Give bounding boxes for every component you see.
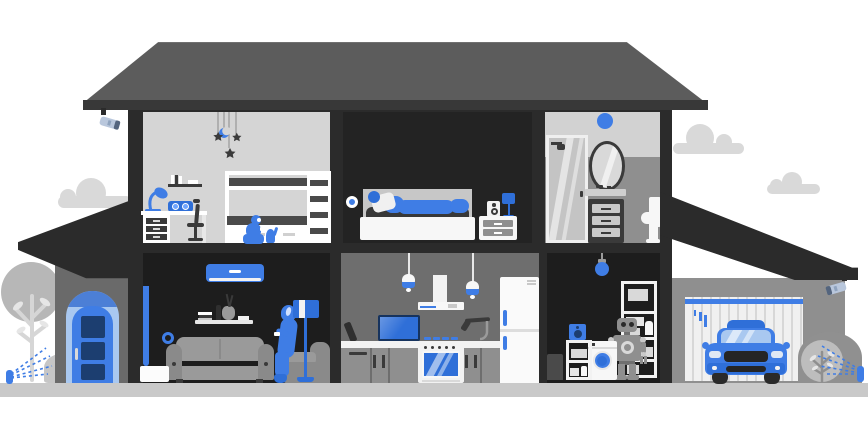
cloud [58, 177, 132, 208]
woman-legs [275, 352, 289, 376]
book-stack [188, 180, 198, 184]
security-camera-left-icon [92, 108, 124, 134]
car-headlight [709, 351, 721, 358]
book-spine [171, 175, 174, 184]
shower [546, 135, 588, 243]
car-windshield [721, 330, 771, 344]
vanity-counter [585, 189, 626, 196]
ground-strip [0, 383, 868, 397]
smart-home-illustration [0, 0, 868, 441]
smart-light [597, 113, 613, 129]
sleeper-feet [450, 199, 469, 213]
bottle [216, 305, 221, 320]
shower-handle [580, 191, 583, 197]
chair-post [194, 227, 197, 238]
car-vent [726, 366, 766, 372]
sofa-foot [256, 379, 263, 383]
drawer-unit [143, 215, 170, 243]
bed-ladder [307, 171, 331, 243]
top-bunk-mattress [229, 178, 307, 186]
mirror [589, 141, 625, 191]
speaker-shelf [566, 324, 592, 380]
car-headlight [771, 351, 783, 358]
phone [274, 332, 280, 336]
cloud-base [767, 184, 820, 194]
robot-head [617, 318, 637, 332]
curtain [143, 286, 149, 366]
floor-lamp-shade [293, 300, 319, 318]
door-panel [81, 364, 105, 380]
cat-tail [273, 227, 278, 236]
drawer [146, 234, 167, 240]
cabinet-handle [474, 355, 477, 368]
drawer [483, 229, 513, 236]
sleeper-body [398, 200, 454, 214]
smart-sensor [346, 196, 358, 208]
toilet-base [646, 239, 660, 243]
shelf-board [195, 320, 253, 324]
towels [571, 349, 587, 358]
cat [266, 227, 278, 243]
cloud-base [673, 143, 744, 154]
sofa-seat [170, 366, 270, 380]
sofa [166, 337, 274, 383]
sofa-foot [176, 379, 183, 383]
fridge [500, 277, 539, 383]
drawer [146, 218, 167, 224]
table-lamp [502, 193, 515, 218]
star-mobile [210, 112, 246, 162]
book-stack [198, 318, 212, 321]
vanity-soap [607, 186, 611, 188]
lamp-shade [502, 193, 515, 204]
speaker [487, 201, 500, 217]
child-legs [243, 234, 264, 244]
car-wheel [712, 373, 728, 384]
burner-knob [424, 337, 431, 340]
pendant-light [401, 253, 416, 293]
woman-boots [274, 374, 287, 383]
cabinet-handle [465, 355, 468, 368]
door-handle [75, 348, 78, 360]
side-table [140, 366, 169, 382]
washing-machine [588, 341, 617, 380]
cloud [767, 172, 820, 194]
cabinet-handle [382, 355, 385, 368]
bottle [581, 366, 587, 376]
drawer [483, 220, 513, 227]
toilet [641, 197, 662, 243]
floor-lamp-pole [304, 318, 307, 377]
cloud [673, 123, 744, 154]
bin [547, 354, 563, 380]
pendant-light [465, 253, 480, 300]
burner-knob [442, 337, 449, 340]
front-door [66, 291, 119, 383]
vanity-drawers [588, 199, 624, 243]
chair-base [188, 238, 203, 241]
cabinet-handle [373, 355, 376, 368]
sprinkler-left [2, 344, 56, 386]
oven [418, 344, 464, 383]
oven-door [422, 351, 460, 378]
burner-knob [433, 337, 440, 340]
vanity-faucet [596, 185, 603, 188]
bed-base [360, 217, 475, 240]
wall-shelf-living [195, 296, 253, 326]
box [570, 368, 579, 376]
car-foglight [712, 366, 717, 370]
fridge-handle [503, 310, 507, 326]
office-chair [185, 199, 207, 243]
drawer [146, 226, 167, 232]
car-wheel [764, 373, 780, 384]
roof-eave [83, 100, 708, 110]
door-panel [81, 342, 105, 360]
car-grille [724, 351, 768, 362]
robot-eye [629, 322, 634, 327]
radio-knob [172, 203, 179, 210]
bed [360, 188, 475, 240]
book-stack [238, 316, 249, 320]
wall-shelf [168, 184, 202, 187]
chair-back [194, 204, 200, 224]
vase [222, 306, 235, 320]
book-spine [175, 175, 178, 184]
shower-head [557, 144, 565, 150]
towels [628, 289, 648, 301]
garage-door-band [685, 299, 803, 304]
range-hood [418, 275, 464, 310]
fridge-handle [503, 336, 507, 350]
speaker [569, 324, 586, 340]
phone [260, 227, 265, 231]
door-panel [81, 316, 105, 338]
garage-roof [660, 192, 858, 280]
top-bunk-rail [229, 186, 307, 190]
car [705, 320, 787, 385]
sprinkler-right [812, 342, 868, 384]
door-arch-band [66, 291, 119, 307]
book-spine [179, 176, 182, 184]
floor-lamp-base [297, 377, 314, 382]
sleeper-head [368, 191, 380, 203]
air-conditioner [206, 264, 264, 282]
car-foglight [775, 366, 780, 370]
cabinet-handle [349, 352, 367, 355]
toilet-pedestal [649, 222, 658, 239]
burner-knob [451, 337, 458, 340]
robot-eye [621, 322, 626, 327]
child-face [257, 218, 261, 222]
nightstand [479, 216, 517, 240]
bunk-bed [225, 171, 331, 243]
faucet [461, 314, 495, 344]
floor-lamp [293, 300, 319, 382]
security-camera-right-icon [822, 274, 854, 300]
chair-headrest [193, 199, 200, 203]
smart-bulb [595, 253, 609, 276]
robot-emblem [621, 341, 634, 354]
